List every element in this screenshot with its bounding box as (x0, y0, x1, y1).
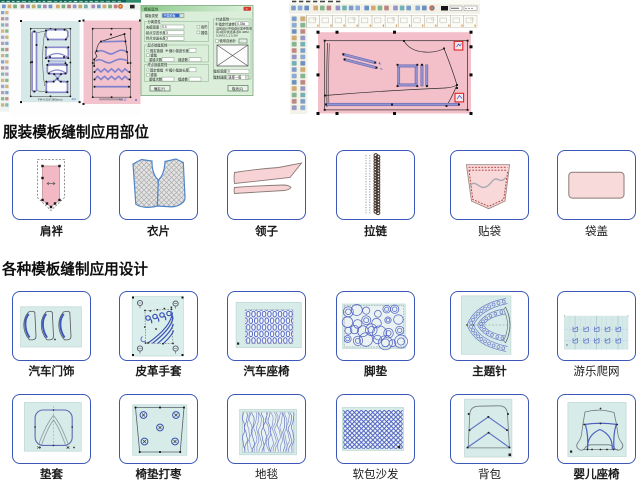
svg-text:使用自画针: 使用自画针 (219, 38, 236, 43)
svg-text:0: 0 (228, 70, 230, 74)
svg-text:0.35d: 0.35d (237, 22, 245, 26)
svg-text:重缝: 重缝 (150, 72, 157, 77)
svg-text:模板类型: 模板类型 (145, 13, 159, 18)
svg-text:平面模板: 平面模板 (164, 13, 176, 18)
svg-text:×: × (246, 7, 248, 11)
svg-text:终点锁缝属性: 终点锁缝属性 (148, 62, 168, 67)
svg-text:3: 3 (166, 31, 168, 35)
svg-text:缝制速度: 缝制速度 (214, 74, 228, 79)
svg-text:缝迹数: 缝迹数 (178, 76, 189, 81)
svg-text:起点锁缝属性: 起点锁缝属性 (148, 42, 168, 47)
svg-text:重缝次数: 重缝次数 (149, 57, 163, 62)
svg-text:夹模宽度: 夹模宽度 (146, 24, 160, 29)
svg-text:速度一般: 速度一般 (228, 75, 242, 80)
svg-text:模板属性: 模板属性 (144, 7, 159, 12)
svg-text:0.4: 0.4 (162, 25, 167, 29)
svg-text:固定锁缝: 固定锁缝 (150, 48, 164, 53)
svg-text:缝迹数: 缝迹数 (178, 57, 189, 62)
svg-text:起点空送长度: 起点空送长度 (146, 30, 166, 35)
svg-text:.dxf: .dxf (71, 97, 76, 101)
svg-text:缝纫宽度: 缝纫宽度 (214, 69, 228, 74)
svg-text:终点空送长度: 终点空送长度 (146, 36, 166, 41)
svg-text:FM-A 201*280(mm): FM-A 201*280(mm) (38, 98, 62, 102)
svg-text:重缝: 重缝 (150, 52, 157, 57)
svg-text:缩小缝迹长度: 缩小缝迹长度 (169, 67, 189, 72)
svg-text:0.2M,0.1,1.5,3M: 0.2M,0.1,1.5,3M (216, 33, 238, 37)
svg-text:3: 3 (166, 37, 168, 41)
svg-text:No.12: No.12 (119, 98, 127, 102)
svg-text:...: ... (241, 39, 244, 43)
svg-text:针迹属性: 针迹属性 (216, 16, 230, 21)
svg-text:取消(C): 取消(C) (232, 86, 243, 91)
svg-text:固定锁缝: 固定锁缝 (150, 67, 164, 72)
svg-text:确定(Y): 确定(Y) (154, 86, 165, 91)
svg-text:分离属性: 分离属性 (148, 19, 162, 24)
svg-text:圆弧: 圆弧 (201, 30, 208, 35)
svg-text:缩小缝迹长度: 缩小缝迹长度 (169, 48, 189, 53)
svg-text:齿形: 齿形 (201, 24, 208, 29)
svg-text:重缝次数: 重缝次数 (149, 76, 163, 81)
